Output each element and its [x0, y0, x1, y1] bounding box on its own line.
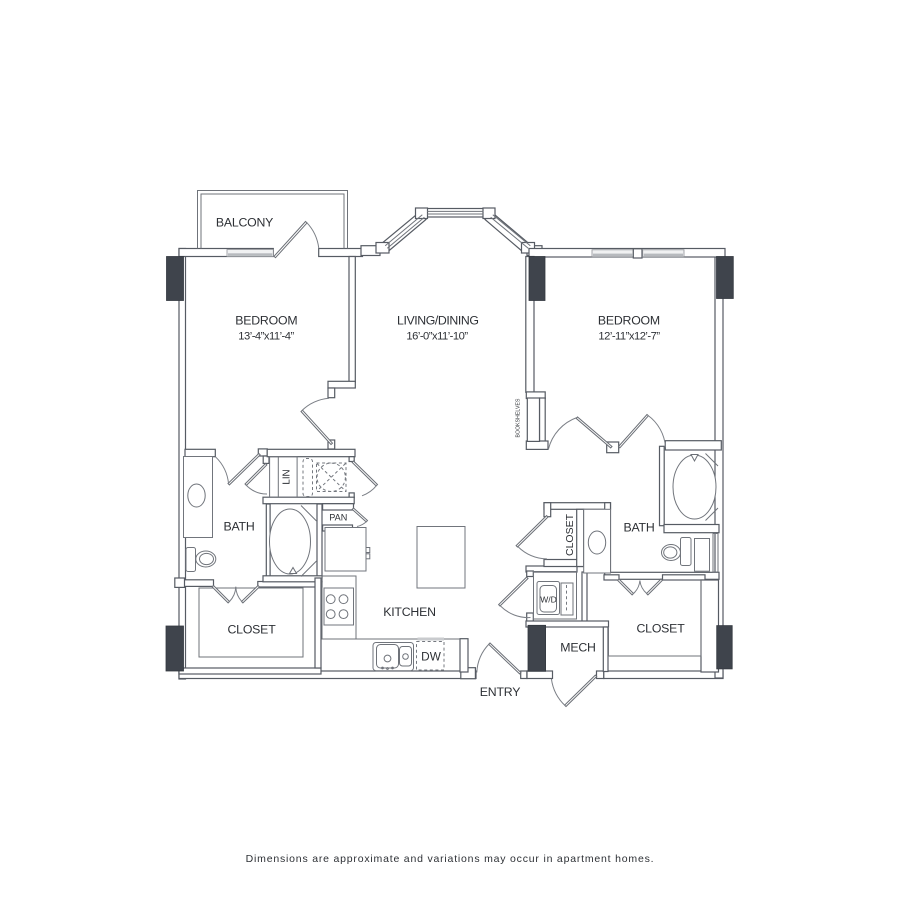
svg-text:ENTRY: ENTRY	[480, 685, 520, 699]
svg-text:BEDROOM: BEDROOM	[598, 314, 660, 328]
svg-text:12’-11”x12’-7”: 12’-11”x12’-7”	[598, 331, 660, 343]
svg-text:LIVING/DINING: LIVING/DINING	[397, 314, 479, 328]
svg-text:BALCONY: BALCONY	[216, 216, 273, 230]
svg-text:BATH: BATH	[623, 521, 654, 535]
svg-text:PAN: PAN	[329, 513, 347, 523]
svg-text:DW: DW	[421, 650, 442, 664]
svg-text:BATH: BATH	[223, 520, 254, 534]
svg-text:16’-0”x11’-10”: 16’-0”x11’-10”	[406, 331, 468, 343]
svg-text:Dimensions are approximate and: Dimensions are approximate and variation…	[246, 853, 655, 865]
svg-text:BEDROOM: BEDROOM	[235, 314, 297, 328]
svg-text:W/D: W/D	[540, 595, 557, 605]
svg-text:CLOSET: CLOSET	[228, 623, 277, 637]
svg-text:LIN: LIN	[282, 469, 293, 484]
svg-text:CLOSET: CLOSET	[637, 622, 686, 636]
svg-text:CLOSET: CLOSET	[564, 513, 576, 556]
svg-text:13’-4”x11’-4”: 13’-4”x11’-4”	[238, 331, 294, 343]
svg-text:MECH: MECH	[560, 641, 595, 655]
svg-text:KITCHEN: KITCHEN	[383, 605, 436, 619]
svg-text:BOOKSHELVES: BOOKSHELVES	[516, 398, 522, 437]
